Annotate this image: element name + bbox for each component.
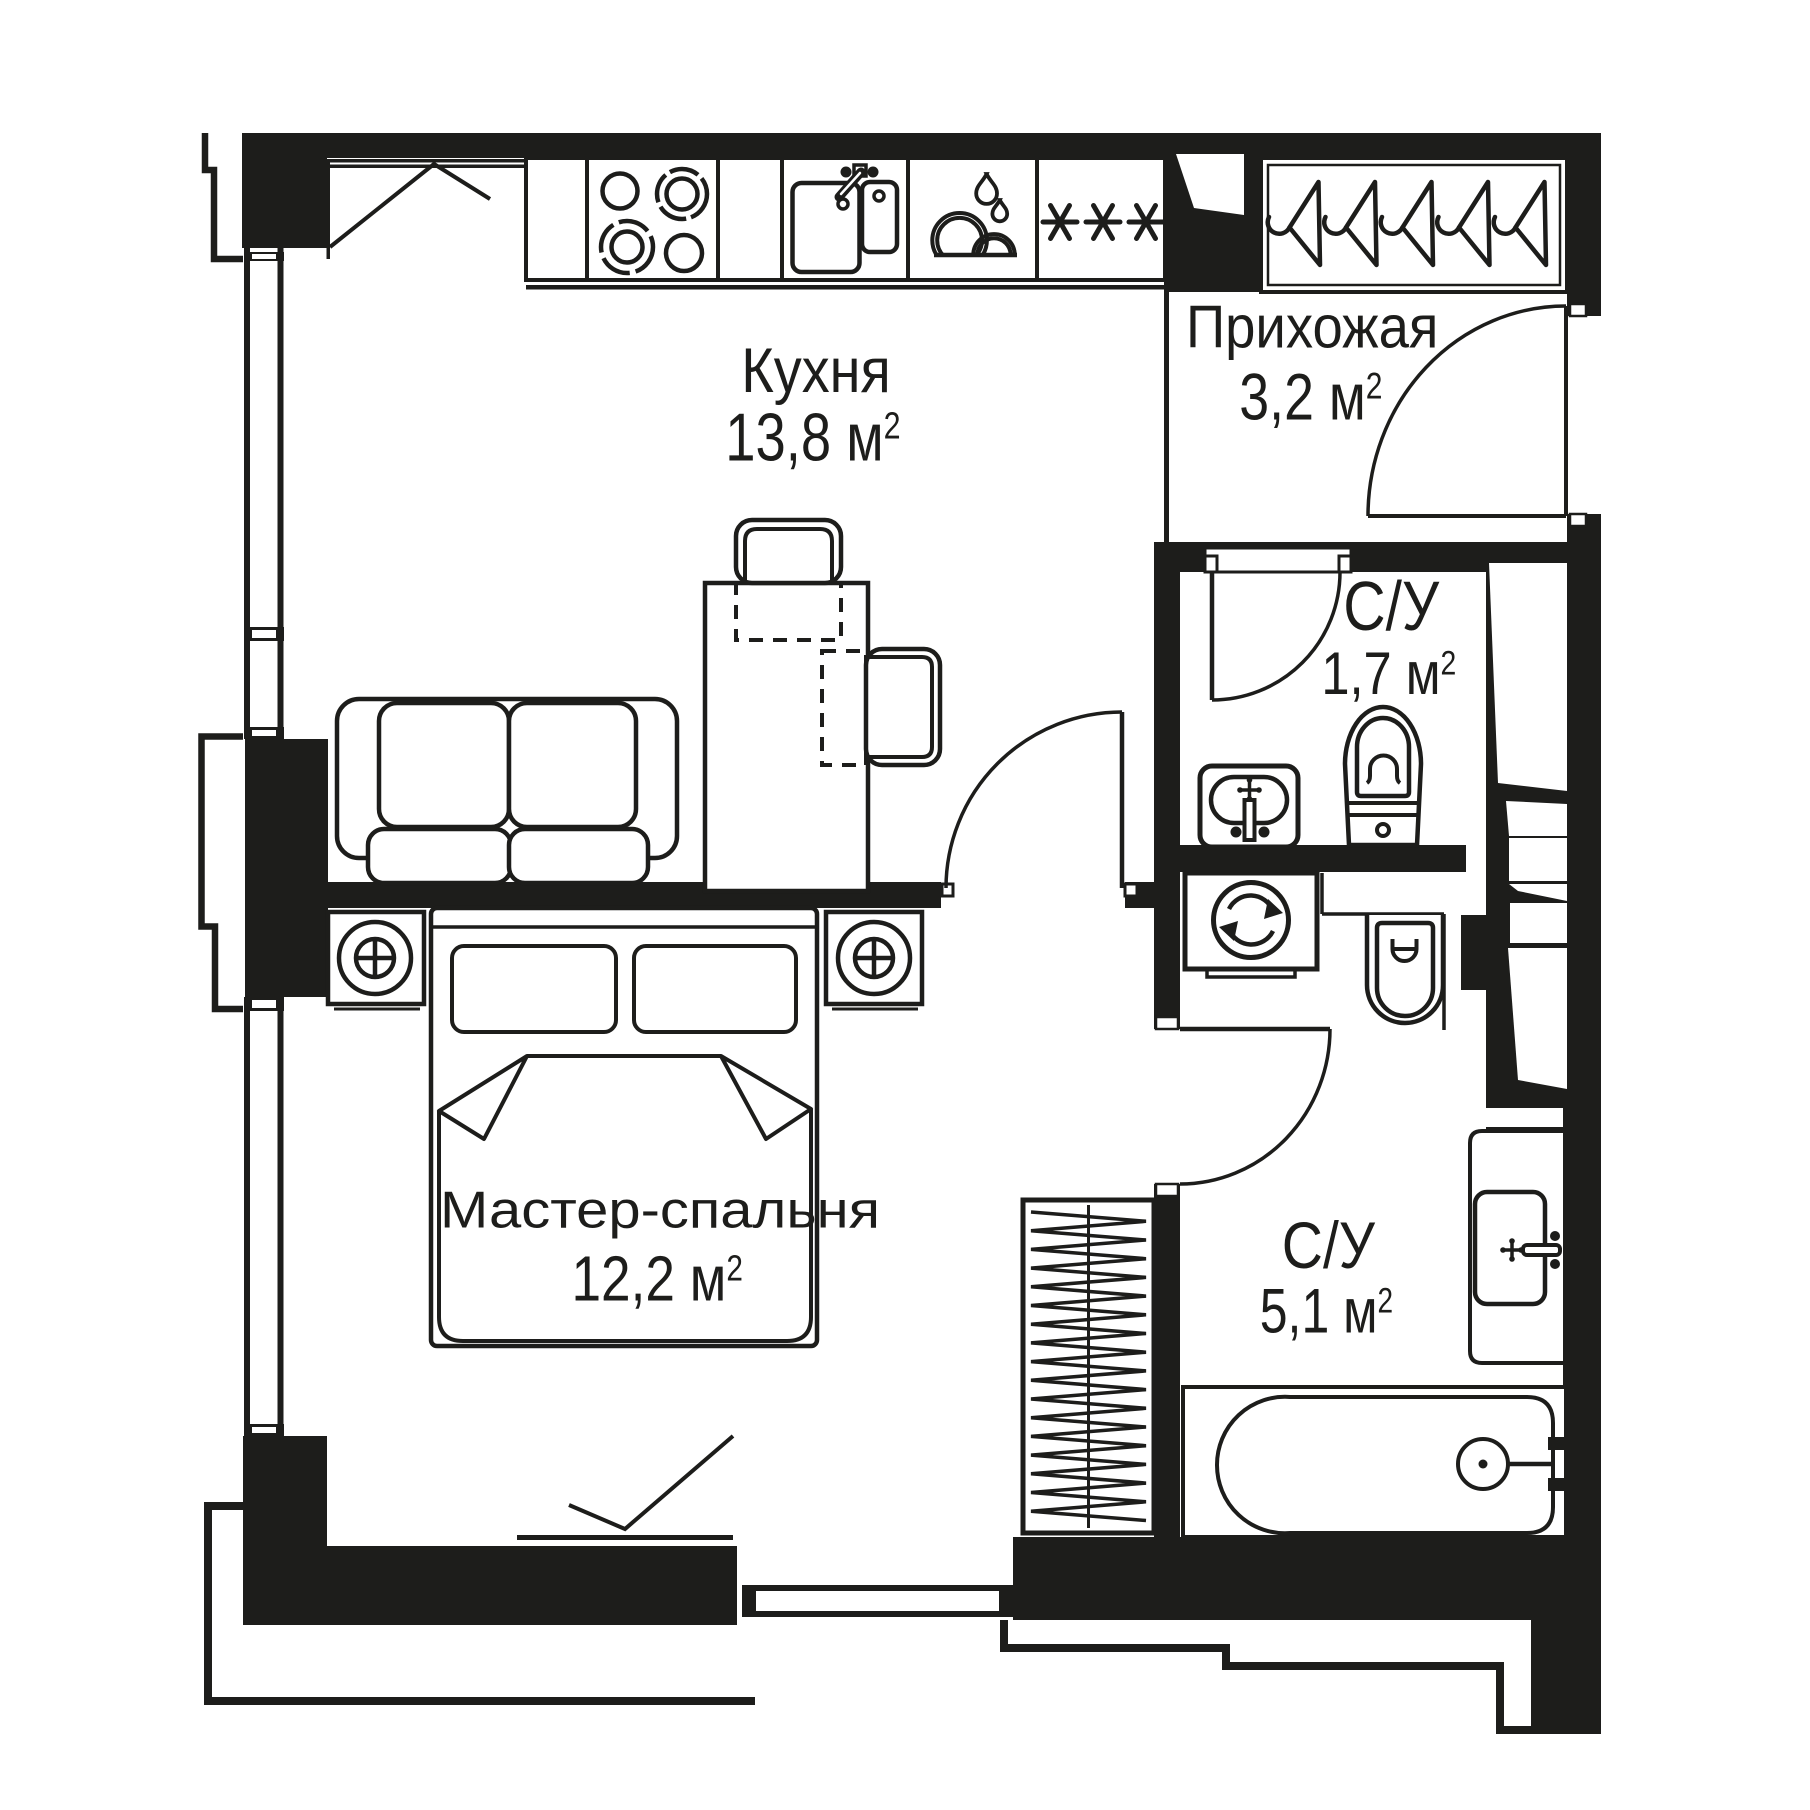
svg-text:13,8 м2: 13,8 м2	[725, 400, 900, 476]
svg-text:5,1 м2: 5,1 м2	[1260, 1277, 1393, 1347]
svg-text:3,2 м2: 3,2 м2	[1239, 359, 1382, 434]
svg-text:С/У: С/У	[1343, 567, 1440, 645]
svg-text:12,2 м2: 12,2 м2	[571, 1244, 742, 1315]
svg-text:Мастер-спальня: Мастер-спальня	[440, 1180, 880, 1238]
svg-text:Кухня: Кухня	[741, 335, 890, 406]
svg-text:1,7 м2: 1,7 м2	[1321, 639, 1456, 707]
svg-text:С/У: С/У	[1282, 1209, 1376, 1283]
svg-text:Прихожая: Прихожая	[1186, 294, 1439, 361]
